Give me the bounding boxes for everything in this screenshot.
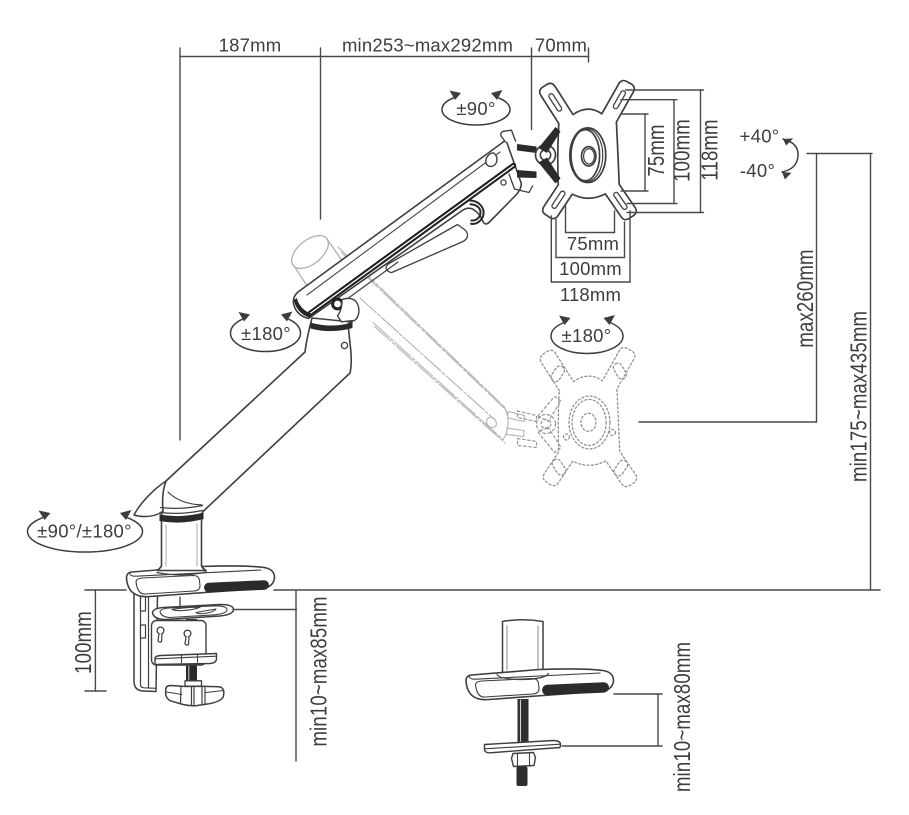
svg-text:100mm: 100mm: [670, 119, 695, 182]
svg-text:min10~max85mm: min10~max85mm: [307, 596, 332, 746]
svg-text:min10~max80mm: min10~max80mm: [670, 642, 695, 792]
svg-text:75mm: 75mm: [644, 124, 669, 176]
svg-text:±90°: ±90°: [456, 98, 495, 119]
svg-text:min175~max435mm: min175~max435mm: [847, 311, 872, 482]
svg-text:+40°: +40°: [740, 126, 780, 147]
svg-text:118mm: 118mm: [698, 119, 723, 180]
svg-text:min253~max292mm: min253~max292mm: [342, 35, 513, 56]
svg-text:-40°: -40°: [740, 160, 775, 181]
svg-text:100mm: 100mm: [559, 258, 622, 279]
svg-text:±90°/±180°: ±90°/±180°: [37, 521, 132, 542]
svg-text:100mm: 100mm: [71, 611, 96, 674]
svg-text:±180°: ±180°: [562, 325, 612, 346]
svg-text:118mm: 118mm: [560, 284, 621, 305]
svg-text:187mm: 187mm: [219, 35, 282, 56]
svg-text:70mm: 70mm: [535, 35, 587, 56]
svg-text:75mm: 75mm: [567, 233, 619, 254]
svg-text:±180°: ±180°: [241, 323, 291, 344]
svg-text:max260mm: max260mm: [793, 249, 818, 347]
